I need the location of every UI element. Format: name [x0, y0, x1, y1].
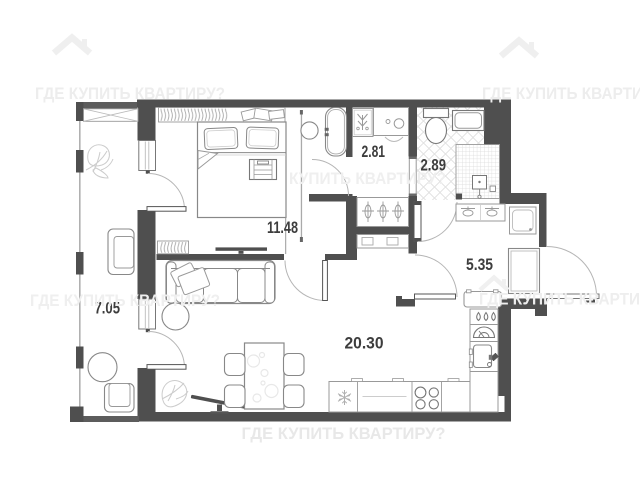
svg-text:ГДЕ КУПИТЬ КВАРТИРУ?: ГДЕ КУПИТЬ КВАРТИРУ?: [242, 425, 446, 443]
svg-text:11.48: 11.48: [267, 218, 298, 237]
svg-text:2.81: 2.81: [362, 142, 386, 161]
svg-text:КУПИТЬ КВАРТИРУ?: КУПИТЬ КВАРТИРУ?: [289, 170, 446, 188]
svg-text:ГДЕ КУПИТЬ КВАРТИРУ?: ГДЕ КУПИТЬ КВАРТИРУ?: [35, 85, 225, 103]
svg-text:ГДЕ КУПИТЬ КВАРТИРУ?: ГДЕ КУПИТЬ КВАРТИРУ?: [30, 292, 220, 310]
svg-text:ГДЕ КУПИТЬ КВАРТИРУ?: ГДЕ КУПИТЬ КВАРТИРУ?: [479, 291, 640, 309]
svg-text:5.35: 5.35: [466, 255, 493, 274]
svg-text:ГДЕ КУПИТЬ КВАРТИРУ?: ГДЕ КУПИТЬ КВАРТИРУ?: [482, 85, 640, 103]
svg-text:20.30: 20.30: [345, 334, 384, 353]
